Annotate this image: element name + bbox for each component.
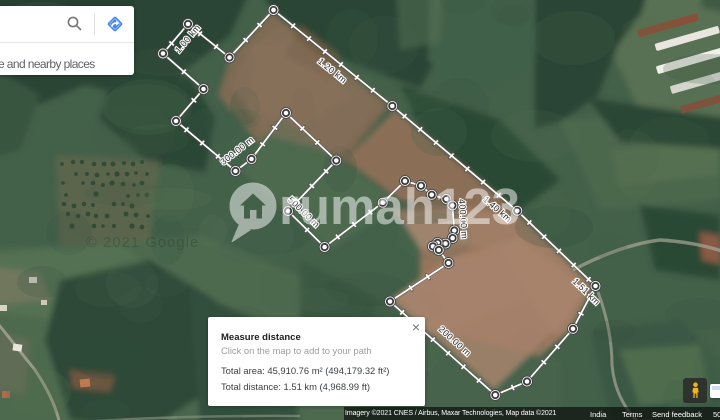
svg-text:© 2021 Google: © 2021 Google	[86, 235, 199, 251]
svg-text:rumah123: rumah123	[279, 178, 520, 235]
